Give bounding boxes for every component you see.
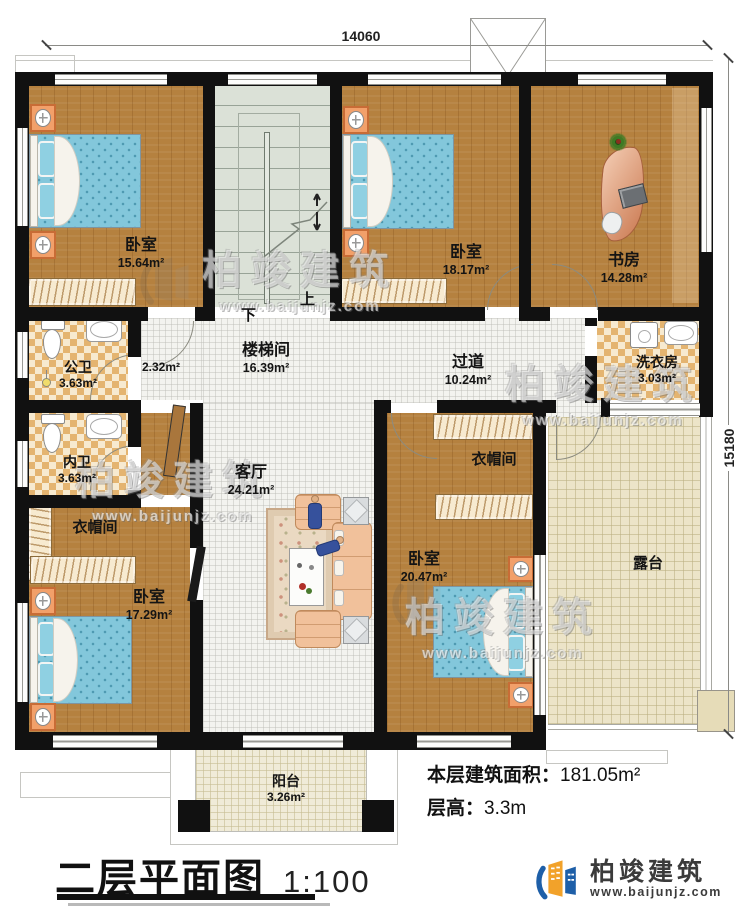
- armchair-bottom: [295, 610, 341, 648]
- room-area: 20.47m²: [378, 570, 470, 585]
- floor-height-value: 3.3m: [484, 798, 526, 819]
- room-name: 卧室: [420, 244, 512, 263]
- throw-pillow: [334, 590, 344, 606]
- bed-pillow: [507, 635, 525, 671]
- window-study-top: [578, 74, 666, 85]
- label-bedroom-top-mid: 卧室 18.17m²: [420, 244, 512, 278]
- label-living: 客厅 24.21m²: [205, 464, 297, 498]
- label-cloak-left: 衣帽间: [49, 519, 141, 537]
- wall-v-bath-c: [128, 490, 141, 508]
- table-lamp-icon: [344, 499, 368, 523]
- plant-berry-icon: [616, 139, 621, 144]
- title-underline-shadow: [68, 903, 330, 906]
- brand-name: 柏竣建筑: [590, 859, 722, 885]
- room-area: 3.63m²: [31, 471, 123, 485]
- room-area: 3.03m²: [611, 371, 703, 385]
- person-body: [315, 539, 342, 558]
- room-area: 3.63m²: [32, 376, 124, 390]
- wall-v-laundry-a: [585, 318, 597, 326]
- room-name: 露台: [602, 555, 694, 573]
- stair-up-label: 上: [300, 288, 315, 309]
- bed-top-mid: [342, 134, 454, 229]
- balcony-pillar-right: [362, 800, 394, 832]
- label-corridor: 过道 10.24m²: [422, 354, 514, 388]
- washing-machine-icon: [630, 322, 658, 348]
- bed-headboard: [343, 135, 351, 228]
- eave-top-line: [15, 60, 713, 61]
- wall-corner-se: [699, 398, 713, 417]
- label-laundry: 洗衣房 3.03m²: [611, 354, 703, 385]
- window-bed2-top: [368, 74, 501, 85]
- wall-h-south-a: [374, 400, 391, 413]
- window-innbath-left: [17, 441, 28, 487]
- room-name: 客厅: [205, 464, 297, 483]
- wall-v-laundry-b: [585, 356, 597, 403]
- nightstand: [343, 229, 369, 257]
- room-name: 公卫: [32, 359, 124, 376]
- wall-h-under-bed2: [330, 307, 485, 321]
- brand-logo: 柏竣建筑 www.baijunjz.com: [536, 856, 722, 902]
- bed-blanket: [53, 618, 78, 702]
- window-pubbath-left: [17, 332, 28, 378]
- dimension-height-value: 15180: [721, 425, 737, 471]
- lamp-icon: [35, 109, 51, 127]
- bed-headboard: [30, 135, 38, 227]
- wall-h-under-bed1-b: [195, 307, 215, 321]
- brand-url: www.baijunjz.com: [590, 885, 722, 899]
- toilet-bowl: [43, 423, 61, 453]
- label-balcony: 阳台 3.26m²: [240, 773, 332, 804]
- room-name: 卧室: [95, 237, 187, 256]
- room-area: 2.32m²: [126, 360, 196, 374]
- window-living-balcony: [243, 735, 343, 748]
- person-head: [311, 495, 319, 503]
- wall-v-stair-bed2: [330, 72, 342, 318]
- window-study-right: [701, 108, 712, 252]
- side-table: [343, 497, 369, 525]
- floor-height-annotation: 层高：3.3m: [427, 793, 526, 820]
- nightstand: [508, 556, 534, 582]
- sink-icon: [664, 321, 698, 345]
- nightstand: [30, 587, 56, 615]
- window-bed4-bottom: [417, 735, 511, 748]
- room-name: 阳台: [240, 773, 332, 790]
- table-lamp-icon: [344, 618, 368, 642]
- floor-area-annotation: 本层建筑面积：181.05m²: [427, 760, 640, 787]
- label-vestibule: 2.32m²: [126, 360, 196, 374]
- bed-pillow: [507, 593, 525, 629]
- bed-top-left: [29, 134, 141, 228]
- nightstand: [30, 104, 56, 132]
- room-area: 14.28m²: [578, 271, 670, 286]
- lamp-icon: [348, 234, 364, 252]
- wardrobe: [28, 278, 136, 306]
- table-decor-dot: [297, 563, 302, 568]
- label-study: 书房 14.28m²: [578, 252, 670, 286]
- terrace-edge-bottom: [548, 724, 712, 730]
- room-name: 卧室: [378, 551, 470, 570]
- dimension-width-value: 14060: [330, 28, 392, 44]
- room-area: 18.17m²: [420, 263, 512, 278]
- wall-v-bath-a: [128, 318, 141, 357]
- bed-bottom-left: [29, 616, 132, 704]
- wardrobe: [435, 494, 533, 520]
- label-bedroom-bottom-left: 卧室 17.29m²: [103, 589, 195, 623]
- label-stairwell: 楼梯间 16.39m²: [220, 342, 312, 376]
- label-cloak-right: 衣帽间: [448, 451, 540, 469]
- room-name: 楼梯间: [220, 342, 312, 361]
- wardrobe: [340, 278, 447, 304]
- room-name: 洗衣房: [611, 354, 703, 371]
- table-flower-icon: [306, 588, 312, 594]
- label-inner-bath: 内卫 3.63m²: [31, 454, 123, 485]
- person-figure: [316, 534, 346, 558]
- window-bed3-bottom: [53, 735, 157, 748]
- balcony-pillar-left: [178, 800, 210, 832]
- nightstand: [30, 231, 56, 259]
- brand-logo-icon: [536, 856, 582, 902]
- label-terrace: 露台: [602, 555, 694, 573]
- window-bed3-left: [17, 603, 28, 702]
- bed-blanket: [54, 136, 80, 226]
- study-side-strip: [672, 88, 698, 303]
- toilet-icon: [40, 320, 66, 362]
- washer-drum: [638, 330, 651, 343]
- wall-v-bath-b: [128, 413, 141, 447]
- wall-h-baths-bottom: [15, 495, 141, 508]
- nightstand: [343, 106, 369, 134]
- label-bedroom-top-left: 卧室 15.64m²: [95, 237, 187, 271]
- room-name: 衣帽间: [448, 451, 540, 469]
- room-name: 过道: [422, 354, 514, 373]
- sink-basin: [90, 321, 118, 338]
- room-name: 内卫: [31, 454, 123, 471]
- floor-area-label: 本层建筑面积：: [427, 765, 560, 786]
- room-area: 17.29m²: [103, 608, 195, 623]
- bed-blanket: [367, 136, 393, 227]
- wall-v-bed2-study: [519, 72, 531, 318]
- label-public-bath: 公卫 3.63m²: [32, 359, 124, 390]
- person-figure: [303, 495, 327, 531]
- side-table: [343, 616, 369, 644]
- lamp-icon: [513, 561, 529, 577]
- table-decor-dot: [309, 565, 314, 570]
- room-area: 3.26m²: [240, 790, 332, 804]
- room-stairwell: [207, 84, 330, 307]
- wall-h-under-study-a: [519, 307, 550, 321]
- bed-headboard: [30, 617, 38, 703]
- room-name: 书房: [578, 252, 670, 271]
- bed-bottom-right: [433, 586, 534, 678]
- bed-blanket: [483, 588, 509, 676]
- room-name: 卧室: [103, 589, 195, 608]
- wardrobe: [30, 556, 136, 584]
- throw-pillow: [334, 560, 344, 576]
- sink-basin: [668, 325, 694, 341]
- room-name: 衣帽间: [49, 519, 141, 537]
- terrace-pillar: [697, 690, 735, 732]
- sink-icon: [86, 414, 122, 439]
- room-area: 10.24m²: [422, 373, 514, 388]
- lamp-icon: [35, 592, 51, 610]
- dimension-line-right: [728, 58, 729, 734]
- nightstand: [508, 682, 534, 708]
- floor-height-label: 层高：: [427, 798, 484, 819]
- lamp-icon: [513, 687, 529, 703]
- room-area: 15.64m²: [95, 256, 187, 271]
- window-bed1-left: [17, 128, 28, 226]
- floor-plan-sheet: 卧室 15.64m² 卧室 18.17m² 书房 14.28m² 楼梯间 16.…: [0, 0, 750, 921]
- window-bed4-terrace: [534, 555, 546, 715]
- wall-pier-terrace: [601, 398, 610, 417]
- roof-window-icon: [470, 18, 546, 76]
- table-flower-icon: [299, 583, 306, 590]
- window-stair-top: [228, 74, 317, 85]
- title-underline: [57, 894, 315, 900]
- floor-area-value: 181.05m²: [560, 765, 640, 786]
- toilet-bowl: [43, 329, 61, 359]
- wardrobe: [433, 414, 533, 440]
- room-area: 24.21m²: [205, 483, 297, 498]
- wall-v-suite-left-a: [190, 403, 203, 548]
- wall-h-baths-mid: [15, 400, 141, 413]
- terrace-railing-right: [700, 417, 712, 728]
- stair-down-label: 下: [241, 304, 256, 325]
- person-body: [308, 503, 322, 529]
- window-bed1-top: [55, 74, 167, 85]
- nightstand: [30, 703, 56, 731]
- window-laundry-terrace: [610, 403, 700, 416]
- stair-break-line: [247, 184, 330, 264]
- room-area: 16.39m²: [220, 361, 312, 376]
- label-bedroom-bottom-right: 卧室 20.47m²: [378, 551, 470, 585]
- lamp-icon: [35, 708, 51, 726]
- wall-h-under-study-b: [598, 307, 713, 321]
- toilet-icon: [40, 414, 66, 456]
- lamp-icon: [35, 236, 51, 254]
- dimension-line-top: [45, 45, 708, 46]
- lamp-icon: [348, 111, 364, 129]
- bed-headboard: [525, 587, 533, 677]
- sink-basin: [90, 418, 118, 435]
- wall-v-bed1-stair: [203, 72, 215, 318]
